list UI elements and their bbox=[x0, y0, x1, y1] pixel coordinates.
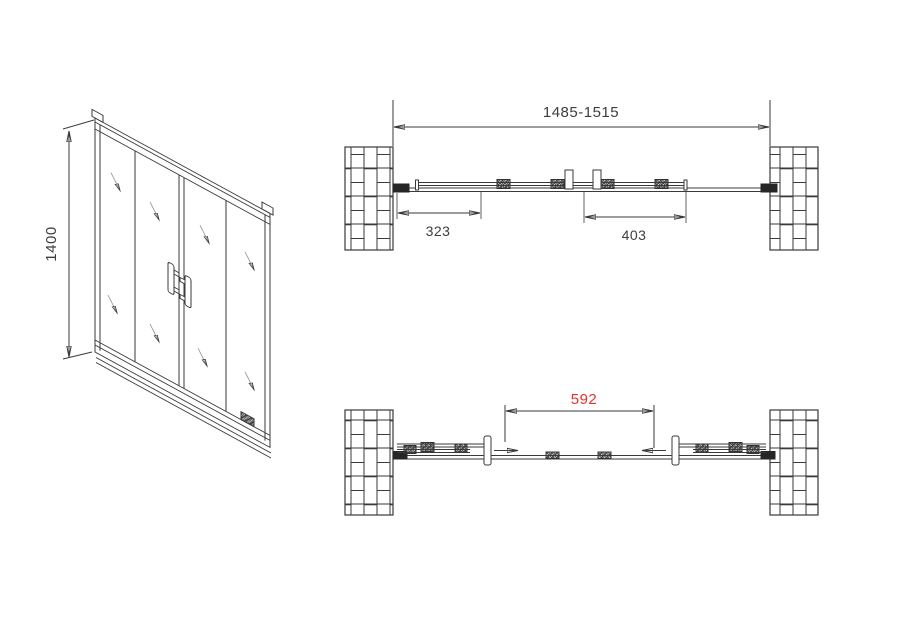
wall-profile-left bbox=[393, 184, 409, 192]
center-guide-block bbox=[598, 452, 611, 459]
technical-drawing-page: 1400 bbox=[0, 0, 900, 636]
roller-block bbox=[404, 446, 416, 454]
top-rail-line bbox=[95, 122, 270, 217]
overall-width-label: 1485-1515 bbox=[543, 104, 619, 121]
isometric-front-view: 1400 bbox=[43, 109, 273, 459]
door-width-label: 403 bbox=[622, 227, 647, 243]
roller-block bbox=[747, 446, 759, 454]
height-dimension: 1400 bbox=[43, 120, 94, 359]
extension-line-top bbox=[63, 120, 94, 129]
height-dimension-label: 1400 bbox=[43, 226, 60, 261]
glass-reflection-marks bbox=[108, 171, 254, 394]
bottom-roller bbox=[241, 412, 254, 427]
left-offset-dimension: 323 bbox=[397, 192, 481, 239]
wall-right bbox=[770, 147, 818, 250]
shower-door-technical-drawing: 1400 bbox=[0, 0, 900, 636]
wall-profile-right bbox=[761, 184, 777, 192]
handle-left-open bbox=[484, 436, 491, 465]
roller-block bbox=[601, 180, 614, 189]
roller-block bbox=[551, 180, 564, 189]
handle-right-open bbox=[672, 436, 679, 465]
door-handle-left bbox=[168, 262, 179, 298]
door-handle-right bbox=[180, 272, 191, 308]
left-offset-label: 323 bbox=[426, 223, 451, 239]
roller-block bbox=[696, 444, 708, 452]
frame-cap-right bbox=[262, 202, 273, 215]
plan-view-closed: 1485-1515 323 403 bbox=[345, 100, 818, 250]
extension-line-bottom bbox=[63, 352, 92, 359]
opening-dimension: 592 bbox=[505, 391, 654, 448]
opening-width-label: 592 bbox=[571, 391, 598, 408]
roller-block bbox=[655, 180, 668, 189]
roller-block bbox=[455, 444, 467, 452]
wall-left bbox=[345, 147, 393, 250]
roller-block bbox=[497, 180, 510, 189]
handle-right-plan bbox=[593, 170, 601, 189]
center-guide-block bbox=[546, 452, 559, 459]
door-frame bbox=[92, 109, 273, 459]
top-rail-line bbox=[95, 129, 270, 224]
wall-left bbox=[345, 410, 393, 515]
roller-block bbox=[729, 443, 742, 452]
wall-right bbox=[770, 410, 818, 515]
panel-end-cap-right bbox=[684, 180, 687, 190]
open-door-stack-right bbox=[642, 436, 766, 465]
door-width-dimension: 403 bbox=[584, 191, 686, 243]
roller-block bbox=[421, 443, 434, 452]
panel-end-cap-left bbox=[416, 180, 419, 190]
open-door-stack-left bbox=[397, 436, 518, 465]
handle-left-plan bbox=[565, 170, 573, 189]
overall-width-dimension: 1485-1515 bbox=[393, 100, 770, 146]
plan-view-open: 592 bbox=[345, 391, 818, 515]
bottom-rail-line bbox=[95, 345, 270, 440]
